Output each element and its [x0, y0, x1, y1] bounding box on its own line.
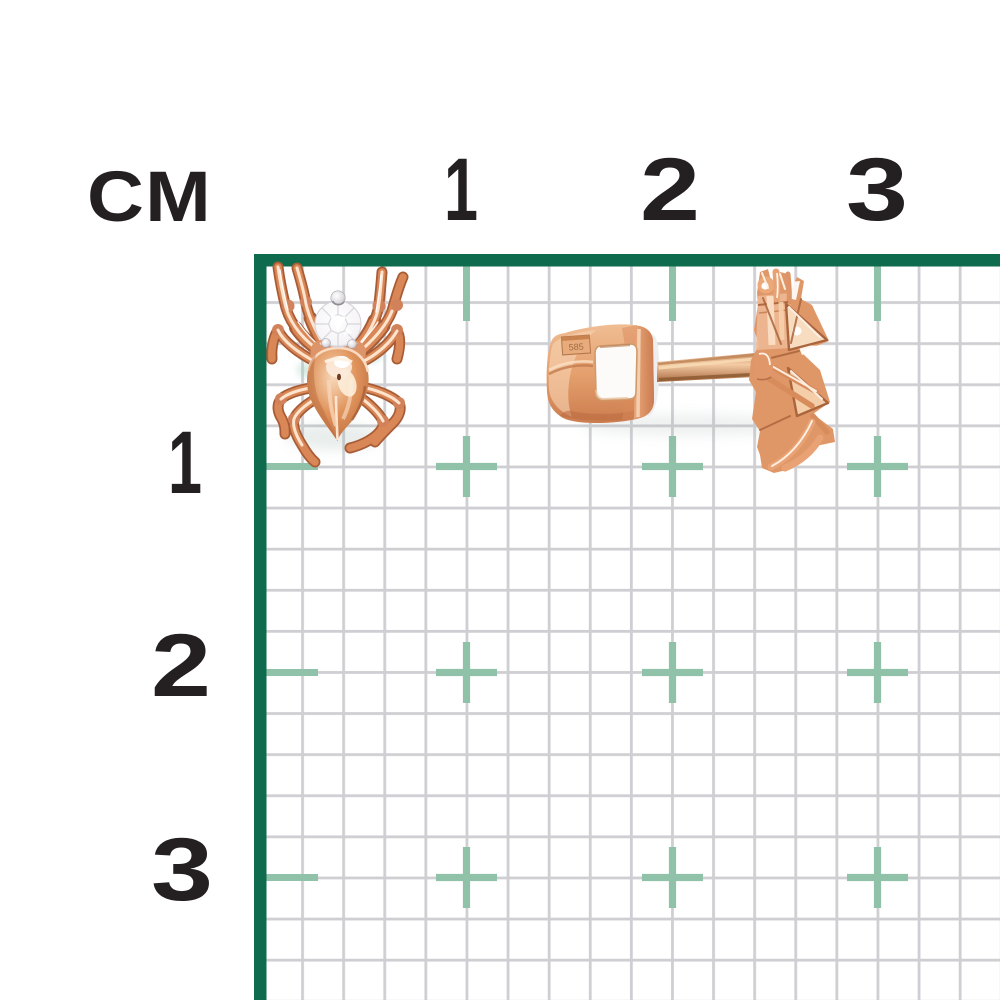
- svg-text:585: 585: [568, 341, 584, 352]
- svg-text:3: 3: [151, 819, 213, 919]
- svg-text:СМ: СМ: [87, 158, 213, 237]
- svg-text:3: 3: [846, 139, 908, 239]
- svg-text:1: 1: [444, 139, 478, 239]
- svg-text:1: 1: [168, 412, 202, 512]
- svg-text:2: 2: [640, 139, 700, 239]
- svg-text:2: 2: [151, 615, 211, 715]
